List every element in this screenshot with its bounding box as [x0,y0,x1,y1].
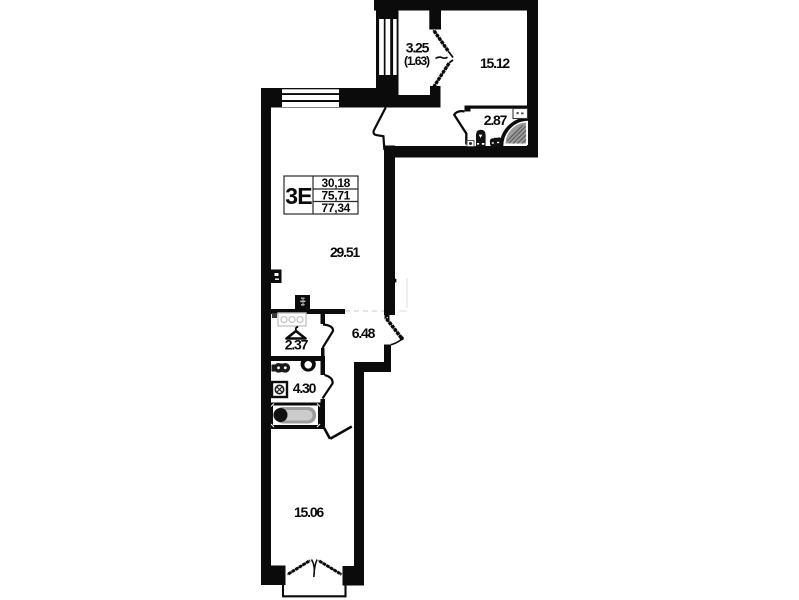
svg-text:6.48: 6.48 [352,325,376,341]
svg-text:77,34: 77,34 [322,201,351,215]
svg-text:15.06: 15.06 [294,504,324,520]
svg-text:(1.63): (1.63) [404,54,430,68]
svg-text:29.51: 29.51 [330,244,360,260]
svg-text:15.12: 15.12 [480,55,510,71]
svg-text:2.37: 2.37 [285,337,309,353]
svg-text:3Е: 3Е [285,183,312,209]
svg-text:2.87: 2.87 [484,112,508,128]
svg-text:4.30: 4.30 [293,380,317,396]
